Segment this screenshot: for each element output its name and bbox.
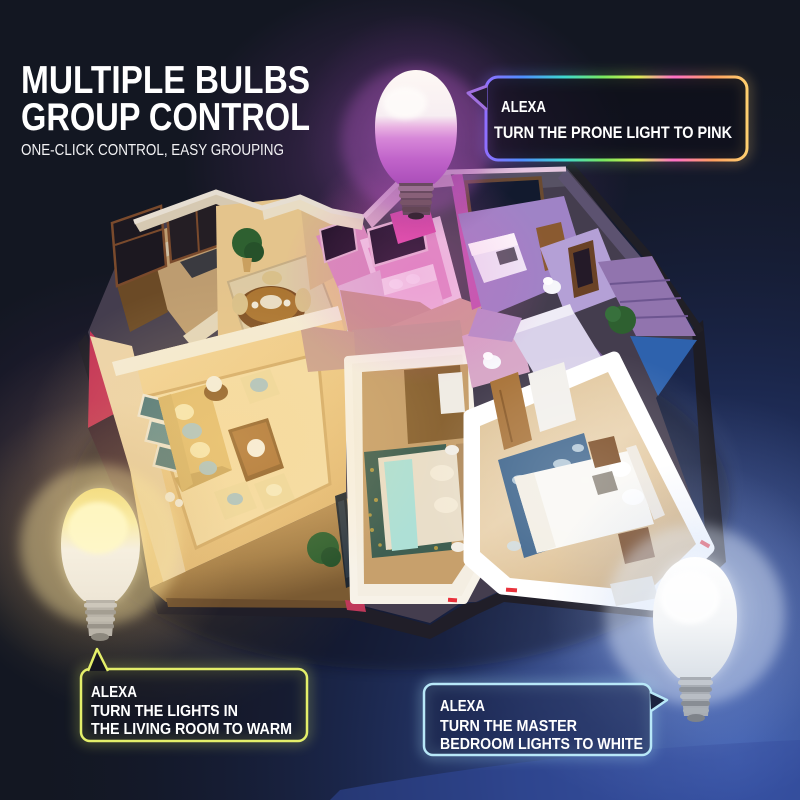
svg-text:TURN THE PRONE LIGHT TO PINK: TURN THE PRONE LIGHT TO PINK bbox=[494, 124, 732, 142]
svg-text:ONE-CLICK CONTROL, EASY GROUPI: ONE-CLICK CONTROL, EASY GROUPING bbox=[21, 142, 284, 159]
svg-text:TURN THE MASTER: TURN THE MASTER bbox=[440, 718, 577, 735]
svg-text:GROUP CONTROL: GROUP CONTROL bbox=[21, 96, 310, 139]
svg-text:ALEXA: ALEXA bbox=[501, 99, 546, 116]
svg-text:THE LIVING ROOM TO WARM: THE LIVING ROOM TO WARM bbox=[91, 721, 292, 738]
svg-text:ALEXA: ALEXA bbox=[440, 698, 485, 715]
svg-text:BEDROOM LIGHTS TO WHITE: BEDROOM LIGHTS TO WHITE bbox=[440, 736, 643, 753]
svg-text:TURN THE LIGHTS IN: TURN THE LIGHTS IN bbox=[91, 703, 238, 720]
svg-text:ALEXA: ALEXA bbox=[91, 684, 137, 701]
